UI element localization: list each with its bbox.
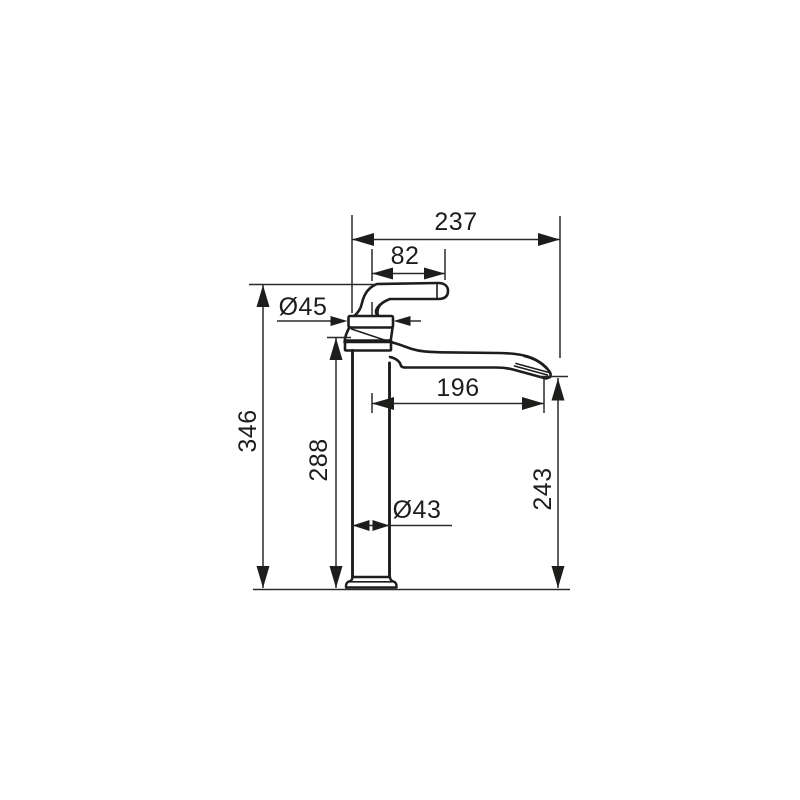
dimension-label-d43: Ø43	[393, 496, 442, 524]
dimension-label-82: 82	[391, 242, 420, 270]
dimension-label-288: 288	[305, 438, 333, 481]
body-taper-cone-line	[352, 329, 387, 341]
arrowhead-right	[394, 316, 411, 326]
dimension-label-d45: Ø45	[279, 293, 328, 321]
arrowhead-bottom	[552, 566, 565, 588]
arrowhead-left	[372, 397, 394, 410]
faucet-spout-top-edge	[391, 342, 551, 377]
arrowhead-bottom	[330, 566, 343, 588]
dimension-label-243: 243	[529, 467, 557, 510]
faucet-outline	[253, 283, 570, 590]
arrowhead-left	[331, 316, 348, 326]
dimension-label-346: 346	[234, 409, 262, 452]
arrowhead-right	[373, 520, 390, 531]
arrowhead-left	[353, 520, 370, 531]
faucet-dimension-drawing: 237 82 Ø45 346 288	[0, 0, 800, 800]
arrowhead-top	[330, 338, 343, 360]
body-taper-right-edge	[391, 328, 393, 340]
dimension-label-237: 237	[434, 208, 477, 236]
dimension-label-196: 196	[436, 374, 479, 402]
dimension-column-diameter: Ø43	[353, 496, 453, 531]
dimension-outlet-height: 243	[529, 377, 568, 589]
arrowhead-right	[522, 397, 544, 410]
arrowhead-bottom	[257, 566, 270, 588]
arrowhead-top	[552, 379, 565, 401]
faucet-handle	[354, 283, 448, 317]
faucet-cartridge-band	[349, 316, 394, 328]
arrowhead-top	[257, 285, 270, 307]
dimension-spout-top-height: 288	[305, 338, 351, 589]
arrowhead-right	[424, 268, 445, 280]
arrowhead-left	[352, 233, 374, 246]
dimension-spout-reach: 196	[372, 374, 544, 413]
technical-drawing-page: 237 82 Ø45 346 288	[0, 0, 800, 800]
arrowhead-right	[538, 233, 560, 246]
